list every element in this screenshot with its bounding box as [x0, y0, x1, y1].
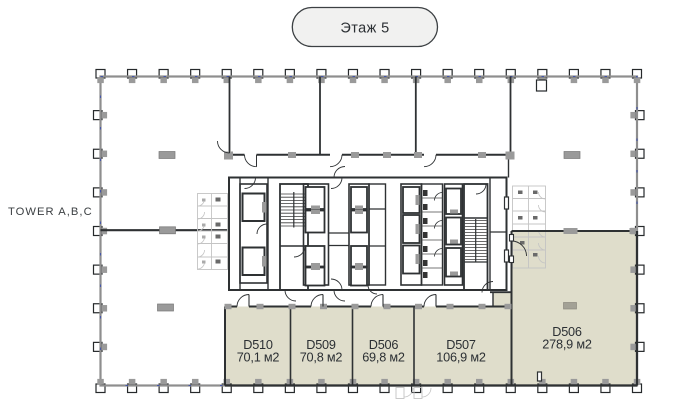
svg-text:70,1 м2: 70,1 м2 — [237, 350, 280, 364]
svg-text:70,8 м2: 70,8 м2 — [300, 350, 343, 364]
svg-text:TOWER A,B,C: TOWER A,B,C — [8, 206, 93, 218]
svg-text:Этаж 5: Этаж 5 — [340, 21, 389, 37]
svg-text:106,9 м2: 106,9 м2 — [436, 350, 486, 364]
svg-text:278,9 м2: 278,9 м2 — [542, 337, 592, 351]
svg-text:69,8 м2: 69,8 м2 — [362, 350, 405, 364]
